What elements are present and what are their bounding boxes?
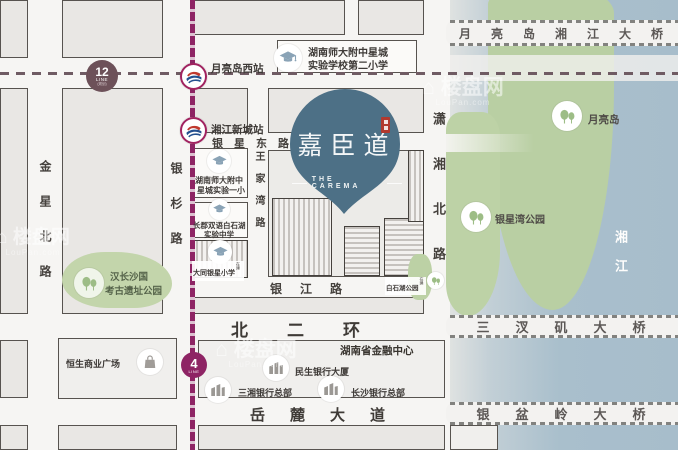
road-label-yuelu-avenue: 岳麓大道 — [250, 404, 410, 425]
road-label-xiaoxiang-north: 潇湘北路 — [429, 112, 448, 292]
park-baishihu-label: 白石湖公园在建 — [385, 277, 426, 295]
seal-mark — [384, 126, 388, 130]
seal-mark — [384, 120, 388, 124]
park-yinxingwan-label: 银星湾公园 — [495, 211, 545, 226]
city-block — [190, 297, 424, 314]
road-label-wangjiawan: 王家湾路 — [251, 151, 266, 239]
road-label-north-second-ring: 北二环 — [231, 316, 399, 341]
bridge-approach-block — [450, 425, 498, 450]
line12-river-corridor — [450, 55, 678, 81]
bridge-edge — [450, 20, 678, 23]
school-datong-name: 大同银星小学 — [193, 270, 235, 277]
trees-glyph — [466, 207, 487, 228]
minsheng-bank-label: 民生银行大厦 — [295, 365, 349, 378]
metro-logo-glyph — [184, 67, 203, 86]
graduation-cap-glyph — [278, 48, 298, 68]
graduation-cap-glyph — [212, 244, 229, 261]
park-han-changsha-line2: 考古遗址公园 — [105, 283, 162, 297]
park-yueliang-island-label: 月亮岛 — [588, 112, 620, 127]
decor-line — [292, 183, 307, 184]
sanxiang-bank-label: 三湘银行总部 — [238, 386, 292, 399]
trees-glyph — [430, 275, 442, 287]
shopping-bag-icon — [137, 349, 163, 375]
line4-badge: 4 LINE — [181, 352, 207, 378]
location-map: 湘江 月亮岛湘江大桥 三汊矶大桥 银盆岭大桥 金星北路 银杉路 王家湾 — [0, 0, 678, 450]
city-block — [62, 0, 163, 58]
decor-line — [387, 183, 402, 184]
school-changjun-line2: 实验中学 — [204, 229, 234, 240]
city-block — [198, 425, 445, 450]
graduation-cap-glyph — [212, 202, 227, 217]
bridge-edge — [450, 422, 678, 425]
park-trees-icon — [427, 272, 444, 289]
city-block — [0, 340, 28, 398]
city-block — [0, 425, 28, 450]
road-label-jinxing-north: 金星北路 — [37, 160, 54, 300]
line12-badge: 12 LINE (规划) — [86, 60, 118, 92]
city-block — [190, 0, 345, 35]
metro-logo-icon — [180, 117, 207, 144]
project-name-en: THE CAREMA — [312, 176, 383, 190]
river-label: 湘江 — [611, 230, 630, 288]
park-trees-icon — [461, 202, 491, 232]
bridge-label: 银盆岭大桥 — [476, 404, 671, 423]
school-datong-note: 在建 — [235, 262, 241, 270]
building-cluster — [408, 150, 424, 222]
trees-glyph — [557, 106, 578, 127]
station-label-xiangjiang-newtown: 湘江新城站 — [211, 122, 264, 137]
graduation-cap-icon — [207, 149, 231, 173]
bridge-edge — [450, 335, 678, 338]
buildings-icon — [205, 377, 231, 403]
bag-glyph — [141, 353, 159, 371]
buildings-icon — [263, 355, 289, 381]
yinxing-east-road-extension — [440, 134, 544, 152]
line4-number: 4 — [190, 357, 197, 370]
hengsheng-plaza-label: 恒生商业广场 — [66, 357, 120, 370]
city-block — [58, 425, 177, 450]
bridge-edge — [450, 315, 678, 318]
metro-logo-glyph — [184, 121, 203, 140]
bridge-label: 三汊矶大桥 — [476, 317, 671, 336]
road-label-yinxing-east: 银星东路 — [212, 135, 300, 151]
park-han-changsha-line1: 汉长沙国 — [110, 269, 148, 283]
park-trees-icon — [74, 268, 104, 298]
line12-note: (规划) — [97, 83, 106, 87]
yinpenling-bridge: 银盆岭大桥 — [446, 402, 678, 425]
graduation-cap-icon — [209, 199, 230, 220]
school-shida-no2-line2: 实验学校第二小学 — [308, 57, 388, 72]
metro-logo-icon — [180, 63, 207, 90]
changsha-bank-label: 长沙银行总部 — [351, 386, 405, 399]
buildings-icon — [318, 376, 344, 402]
road-label-yinshan: 银杉路 — [168, 162, 185, 267]
yueliangdao-bridge: 月亮岛湘江大桥 — [446, 20, 678, 46]
line4-unit: LINE — [189, 370, 200, 374]
bridge-edge — [450, 43, 678, 46]
station-label-yueliangdao-west: 月亮岛西站 — [211, 61, 264, 76]
trees-glyph — [79, 273, 100, 294]
buildings-glyph — [267, 359, 285, 377]
park-baishihu-name: 白石湖公园 — [386, 285, 419, 292]
building-tower — [344, 226, 380, 276]
sanchaji-bridge: 三汊矶大桥 — [446, 315, 678, 338]
city-block — [0, 0, 28, 58]
city-block — [0, 88, 28, 314]
park-trees-icon — [552, 101, 582, 131]
project-seal — [381, 117, 390, 133]
buildings-glyph — [322, 380, 340, 398]
school-shida-yixiao-line2: 星城实验一小 — [197, 185, 245, 196]
city-block — [358, 0, 424, 35]
road-label-yinjiang: 银江路 — [270, 280, 360, 297]
graduation-cap-icon — [274, 44, 302, 72]
project-name-en-row: THE CAREMA — [292, 176, 402, 190]
bridge-edge — [450, 402, 678, 405]
financial-center-label: 湖南省金融中心 — [340, 343, 414, 358]
graduation-cap-glyph — [211, 153, 228, 170]
buildings-glyph — [209, 381, 227, 399]
school-datong-label: 大同银星小学在建 — [192, 261, 244, 281]
bridge-label: 月亮岛湘江大桥 — [459, 25, 678, 42]
park-baishihu-note: 在建 — [419, 277, 425, 285]
